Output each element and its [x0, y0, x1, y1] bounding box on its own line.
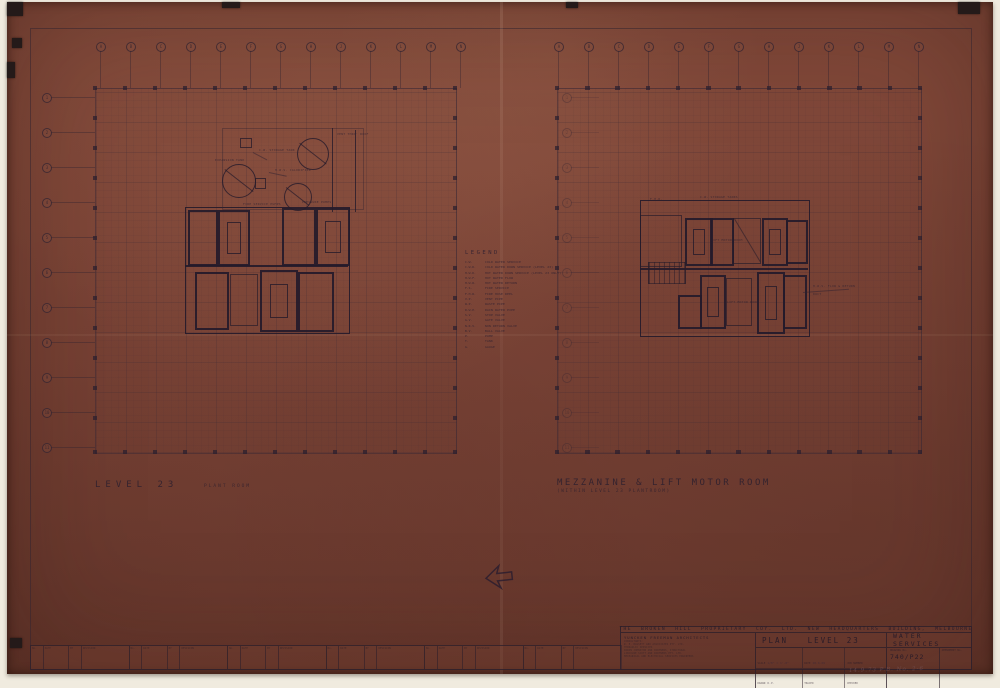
grid-column-marker: H	[306, 42, 316, 52]
scale-label: SCALE	[758, 662, 766, 665]
drawn-value: R.P.	[767, 681, 774, 685]
grid-tick	[588, 51, 589, 88]
revision-group: No.DATEBYREVISION	[524, 646, 622, 669]
grid-row-marker: 3	[562, 163, 572, 173]
structural-column	[333, 86, 338, 91]
discipline-cell: WATER SERVICES DRAWING No. 740/P22 AMEND…	[887, 633, 971, 688]
traced-cell: TRACED	[803, 669, 846, 688]
structural-column	[93, 416, 98, 421]
structural-column	[918, 356, 923, 361]
room-label: C.W. STORAGE TANKS	[700, 195, 738, 199]
grid-tick	[678, 51, 679, 88]
equipment-label: FIRE SERVICE PUMPS	[243, 202, 281, 206]
structural-column	[918, 236, 923, 241]
structural-column	[555, 146, 560, 151]
equipment-label: H.W.S. CALORIFIER	[275, 168, 311, 172]
revision-cell: DATE	[438, 646, 463, 669]
structural-column	[555, 266, 560, 271]
revision-cell: REVISION	[377, 646, 424, 669]
revision-group: No.DATEBYREVISION	[425, 646, 524, 669]
structural-column	[918, 386, 923, 391]
structural-column	[918, 266, 923, 271]
grid-tick	[100, 51, 101, 88]
job-number-cell: JOB NUMBER	[845, 648, 886, 668]
structural-column	[706, 86, 711, 91]
grid-tick	[340, 51, 341, 88]
grid-row-marker: 6	[562, 268, 572, 278]
structural-column	[857, 86, 862, 91]
grid-column-marker: M	[884, 42, 894, 52]
structural-column	[918, 86, 923, 91]
grid-row-marker: 5	[42, 233, 52, 243]
drawing-number-label: DRAWING No.	[890, 649, 939, 652]
plant-room	[230, 274, 258, 326]
grid-row-marker: 4	[562, 198, 572, 208]
structural-column	[93, 206, 98, 211]
structural-column	[918, 416, 923, 421]
scale-cell: SCALE1/8" = 1'-0"	[756, 648, 803, 668]
structural-column	[93, 386, 98, 391]
grid-tick	[51, 132, 95, 133]
plant-room	[298, 272, 334, 332]
grid-tick	[558, 51, 559, 88]
grid-tick	[51, 377, 95, 378]
room-label: LIFT MOTOR ROOM	[711, 238, 743, 242]
grid-column-marker: D	[644, 42, 654, 52]
structural-column	[93, 116, 98, 121]
revision-cell: DATE	[339, 646, 364, 669]
structural-column	[736, 86, 741, 91]
grid-tick	[571, 342, 599, 343]
grid-row-marker: 6	[42, 268, 52, 278]
revision-cell: No.	[524, 646, 537, 669]
water-tank	[297, 138, 329, 170]
room-label: H.W.S. FLOW & RETURN	[813, 284, 855, 288]
right-plan-title: MEZZANINE & LIFT MOTOR ROOM	[557, 478, 771, 488]
structural-column	[827, 450, 832, 455]
grid-tick	[768, 51, 769, 88]
grid-row-marker: 5	[562, 233, 572, 243]
tape-mark	[958, 2, 980, 14]
structural-column	[918, 296, 923, 301]
grid-column-marker: A	[96, 42, 106, 52]
architect-cell: YUNCKEN FREEMAN ARCHITECTS CONSULTANTS:W…	[621, 633, 756, 688]
structural-column	[153, 86, 158, 91]
revision-cell: REVISION	[574, 646, 621, 669]
structural-column	[797, 450, 802, 455]
revision-cell: REVISION	[476, 646, 523, 669]
grid-row-marker: 8	[42, 338, 52, 348]
structural-column	[123, 86, 128, 91]
grid-tick	[51, 237, 95, 238]
structural-column	[93, 86, 98, 91]
structural-column	[555, 326, 560, 331]
right-plan-subtitle: (WITHIN LEVEL 23 PLANTROOM)	[557, 489, 771, 494]
grid-row-marker: 2	[42, 128, 52, 138]
structural-column	[736, 450, 741, 455]
plant-room	[218, 210, 250, 266]
grid-tick	[618, 51, 619, 88]
revision-group: No.DATEBYREVISION	[327, 646, 426, 669]
structural-column	[153, 450, 158, 455]
grid-column-marker: K	[824, 42, 834, 52]
grid-row-marker: 9	[42, 373, 52, 383]
revision-cell: No.	[228, 646, 241, 669]
structural-column	[93, 356, 98, 361]
structural-column	[453, 326, 458, 331]
structural-column	[363, 86, 368, 91]
mezzanine-room	[700, 275, 726, 329]
grid-tick	[310, 51, 311, 88]
grid-tick	[571, 377, 599, 378]
revision-cell: REVISION	[180, 646, 227, 669]
structural-column	[453, 296, 458, 301]
grid-column-marker: A	[554, 42, 564, 52]
water-tank	[222, 164, 256, 198]
grid-tick	[370, 51, 371, 88]
grid-column-marker: J	[794, 42, 804, 52]
revision-cell: DATE	[44, 646, 69, 669]
mezzanine-room	[783, 275, 807, 329]
grid-tick	[888, 51, 889, 88]
revision-cell: BY	[69, 646, 82, 669]
structural-column	[555, 386, 560, 391]
structural-column	[767, 450, 772, 455]
revision-cell: REVISION	[279, 646, 326, 669]
tape-mark	[222, 2, 240, 8]
revision-cell: BY	[168, 646, 181, 669]
grid-tick	[708, 51, 709, 88]
structural-column	[123, 450, 128, 455]
lift-motor-room	[762, 218, 788, 266]
consultant-line: MECHANICAL AND ELECTRICAL SERVICES ENGIN…	[624, 655, 752, 658]
grid-tick	[280, 51, 281, 88]
structural-column	[303, 450, 308, 455]
checked-label: CHECKED	[847, 682, 858, 685]
grid-row-marker: 1	[562, 93, 572, 103]
drawing-title: PLAN LEVEL 23	[756, 633, 886, 648]
grid-tick	[460, 51, 461, 88]
grid-column-marker: E	[674, 42, 684, 52]
grid-tick	[738, 51, 739, 88]
date-value: 20.6.69	[812, 661, 825, 665]
grid-tick	[51, 97, 95, 98]
grid-tick	[571, 132, 599, 133]
revision-cell: BY	[266, 646, 279, 669]
revision-group: No.DATEBYREVISION	[31, 646, 130, 669]
grid-column-marker: N	[914, 42, 924, 52]
equipment-label: VENT THRO' ROOF	[337, 132, 369, 136]
structural-column	[646, 86, 651, 91]
tape-mark	[7, 62, 15, 78]
structural-column	[453, 206, 458, 211]
grid-column-marker: J	[336, 42, 346, 52]
structural-column	[555, 450, 560, 455]
equipment-label: EXPANSION TANK	[215, 158, 245, 162]
revision-cell: BY	[463, 646, 476, 669]
structural-column	[676, 86, 681, 91]
grid-column-marker: L	[854, 42, 864, 52]
grid-tick	[858, 51, 859, 88]
grid-tick	[51, 202, 95, 203]
structural-column	[646, 450, 651, 455]
grid-column-marker: F	[246, 42, 256, 52]
grid-tick	[51, 342, 95, 343]
grid-tick	[51, 167, 95, 168]
grid-tick	[571, 237, 599, 238]
lift-motor-room	[685, 218, 713, 266]
structural-column	[93, 450, 98, 455]
grid-row-marker: 10	[42, 408, 52, 418]
structural-column	[555, 206, 560, 211]
equipment-box	[255, 178, 266, 189]
mezzanine-room	[640, 215, 682, 267]
equipment-box	[240, 138, 252, 148]
grid-column-marker: E	[216, 42, 226, 52]
grid-tick	[160, 51, 161, 88]
structural-column	[555, 416, 560, 421]
structural-column	[93, 326, 98, 331]
plant-room	[260, 270, 298, 332]
grid-tick	[130, 51, 131, 88]
grid-tick	[648, 51, 649, 88]
structural-column	[918, 176, 923, 181]
revision-group: No.DATEBYREVISION	[228, 646, 327, 669]
structural-column	[453, 356, 458, 361]
grid-column-marker: N	[456, 42, 466, 52]
structural-column	[888, 450, 893, 455]
structural-column	[423, 86, 428, 91]
tape-mark	[7, 2, 23, 16]
drawing-number: 740/P22	[890, 653, 939, 661]
structural-column	[453, 450, 458, 455]
structural-column	[453, 146, 458, 151]
date-label: DATE	[804, 662, 810, 665]
structural-column	[555, 356, 560, 361]
legend-title: LEGEND	[465, 250, 573, 256]
grid-row-marker: 4	[42, 198, 52, 208]
lift-motor-room	[710, 218, 734, 266]
structural-column	[273, 450, 278, 455]
structural-column	[918, 326, 923, 331]
structural-column	[857, 450, 862, 455]
grid-tick	[400, 51, 401, 88]
structural-column	[453, 266, 458, 271]
room-label: DUCT	[813, 292, 821, 296]
consultant-list: CONSULTANTS:W. E. BASSETT AND ASSOCIATES…	[624, 640, 752, 659]
grid-tick	[828, 51, 829, 88]
structural-column	[363, 450, 368, 455]
pipe-riser	[332, 128, 333, 212]
grid-row-marker: 11	[562, 443, 572, 453]
right-plan-caption: MEZZANINE & LIFT MOTOR ROOM (WITHIN LEVE…	[557, 478, 771, 494]
grid-row-marker: 9	[562, 373, 572, 383]
structural-column	[243, 450, 248, 455]
structural-column	[303, 86, 308, 91]
left-plan-subtitle: PLANT ROOM	[204, 484, 251, 489]
grid-column-marker: F	[704, 42, 714, 52]
grid-tick	[571, 202, 599, 203]
structural-column	[827, 86, 832, 91]
structural-column	[555, 86, 560, 91]
structural-column	[555, 296, 560, 301]
structural-column	[243, 86, 248, 91]
grid-tick	[430, 51, 431, 88]
grid-tick	[51, 272, 95, 273]
room-label: LIFT MOTOR ROOM	[727, 300, 759, 304]
room-label: F.H.R.	[650, 197, 663, 201]
legend-abbr: G.	[465, 345, 485, 350]
revision-cell: DATE	[536, 646, 561, 669]
equipment-label: PRESSURE PUMPS	[302, 200, 332, 204]
grid-tick	[51, 447, 95, 448]
equipment-label: C.W. STORAGE TANK	[259, 148, 295, 152]
grid-row-marker: 7	[562, 303, 572, 313]
structural-column	[453, 386, 458, 391]
legend-entry: G.GAUGE	[465, 345, 573, 350]
structural-column	[706, 450, 711, 455]
grid-tick	[798, 51, 799, 88]
structural-column	[93, 146, 98, 151]
structural-column	[918, 450, 923, 455]
structural-column	[93, 266, 98, 271]
grid-column-marker: M	[426, 42, 436, 52]
structural-column	[93, 296, 98, 301]
structural-column	[453, 176, 458, 181]
structural-column	[183, 450, 188, 455]
grid-tick	[571, 412, 599, 413]
grid-tick	[220, 51, 221, 88]
structural-column	[453, 86, 458, 91]
tape-mark	[12, 38, 22, 48]
grid-row-marker: 3	[42, 163, 52, 173]
structural-column	[585, 86, 590, 91]
tape-mark	[10, 638, 22, 648]
revision-cell: REVISION	[82, 646, 129, 669]
mezzanine-room	[757, 272, 785, 334]
revision-strip: No.DATEBYREVISIONNo.DATEBYREVISIONNo.DAT…	[30, 645, 622, 670]
scale-value: 1/8" = 1'-0"	[767, 661, 789, 665]
grid-tick	[571, 447, 599, 448]
structural-column	[273, 86, 278, 91]
grid-column-marker: D	[186, 42, 196, 52]
drawn-cell: DRAWNR.P.	[756, 669, 803, 688]
structural-column	[213, 86, 218, 91]
grid-tick	[51, 307, 95, 308]
pipe-riser	[355, 130, 356, 212]
structural-column	[767, 86, 772, 91]
structural-column	[453, 416, 458, 421]
left-plan-title: LEVEL 23	[95, 480, 178, 490]
revision-cell: BY	[562, 646, 575, 669]
left-plan-caption: LEVEL 23 PLANT ROOM	[95, 472, 251, 491]
grid-row-marker: 2	[562, 128, 572, 138]
plant-room	[188, 210, 218, 266]
structural-column	[918, 116, 923, 121]
revision-cell: BY	[365, 646, 378, 669]
grid-tick	[918, 51, 919, 88]
structural-column	[676, 450, 681, 455]
grid-tick	[51, 412, 95, 413]
grid-row-marker: 8	[562, 338, 572, 348]
structural-column	[615, 450, 620, 455]
revision-cell: DATE	[241, 646, 266, 669]
drawing-sheet: C.W. STORAGE TANK H.W.S. CALORIFIER EXPA…	[7, 2, 993, 674]
revision-group: No.DATEBYREVISION	[130, 646, 229, 669]
structural-column	[453, 116, 458, 121]
grid-column-marker: H	[764, 42, 774, 52]
structural-column	[93, 236, 98, 241]
structural-column	[615, 86, 620, 91]
grid-tick	[571, 307, 599, 308]
discipline-title: WATER SERVICES	[887, 633, 971, 648]
revision-cell: No.	[327, 646, 340, 669]
grid-row-marker: 1	[42, 93, 52, 103]
revision-cell: No.	[31, 646, 44, 669]
title-block: THE BROKEN HILL PROPRIETARY COY. LTD. NE…	[620, 626, 972, 670]
grid-column-marker: L	[396, 42, 406, 52]
grid-tick	[571, 97, 599, 98]
grid-row-marker: 10	[562, 408, 572, 418]
revision-cell: No.	[425, 646, 438, 669]
grid-tick	[250, 51, 251, 88]
amendment-cell: AMENDMENT No.	[940, 648, 971, 688]
grid-tick	[190, 51, 191, 88]
structural-column	[918, 146, 923, 151]
structural-column	[918, 206, 923, 211]
structural-column	[183, 86, 188, 91]
stair	[648, 262, 686, 284]
grid-tick	[571, 272, 599, 273]
grid-column-marker: C	[156, 42, 166, 52]
plant-room	[195, 272, 229, 330]
date-cell: DATE20.6.69	[803, 648, 846, 668]
drawn-label: DRAWN	[758, 682, 766, 685]
revision-cell: No.	[130, 646, 143, 669]
revision-cell: DATE	[142, 646, 167, 669]
structural-column	[213, 450, 218, 455]
grid-column-marker: C	[614, 42, 624, 52]
legend-rows: C.W.COLD WATER SERVICEC.W.D.COLD WATER D…	[465, 260, 573, 350]
drawing-title-cell: PLAN LEVEL 23 SCALE1/8" = 1'-0" DATE20.6…	[756, 633, 887, 688]
structural-column	[888, 86, 893, 91]
plant-room	[316, 208, 350, 266]
structural-column	[555, 236, 560, 241]
north-arrow-icon	[482, 561, 517, 592]
structural-column	[453, 236, 458, 241]
structural-column	[423, 450, 428, 455]
grid-column-marker: B	[126, 42, 136, 52]
grid-column-marker: B	[584, 42, 594, 52]
structural-column	[555, 116, 560, 121]
grid-column-marker: K	[366, 42, 376, 52]
lift-motor-room	[786, 220, 808, 264]
structural-column	[333, 450, 338, 455]
grid-column-marker: G	[734, 42, 744, 52]
grid-row-marker: 11	[42, 443, 52, 453]
grid-column-marker: G	[276, 42, 286, 52]
job-number-label: JOB NUMBER	[847, 662, 863, 665]
scanned-drawing-photo: { "sheet": { "plans": { "left": {"title"…	[0, 0, 1000, 687]
grid-tick	[571, 167, 599, 168]
structural-column	[393, 86, 398, 91]
grid-row-marker: 7	[42, 303, 52, 313]
structural-column	[93, 176, 98, 181]
tape-mark	[566, 2, 578, 8]
traced-label: TRACED	[804, 682, 813, 685]
mezzanine-room	[678, 295, 702, 329]
plant-room	[282, 208, 316, 266]
